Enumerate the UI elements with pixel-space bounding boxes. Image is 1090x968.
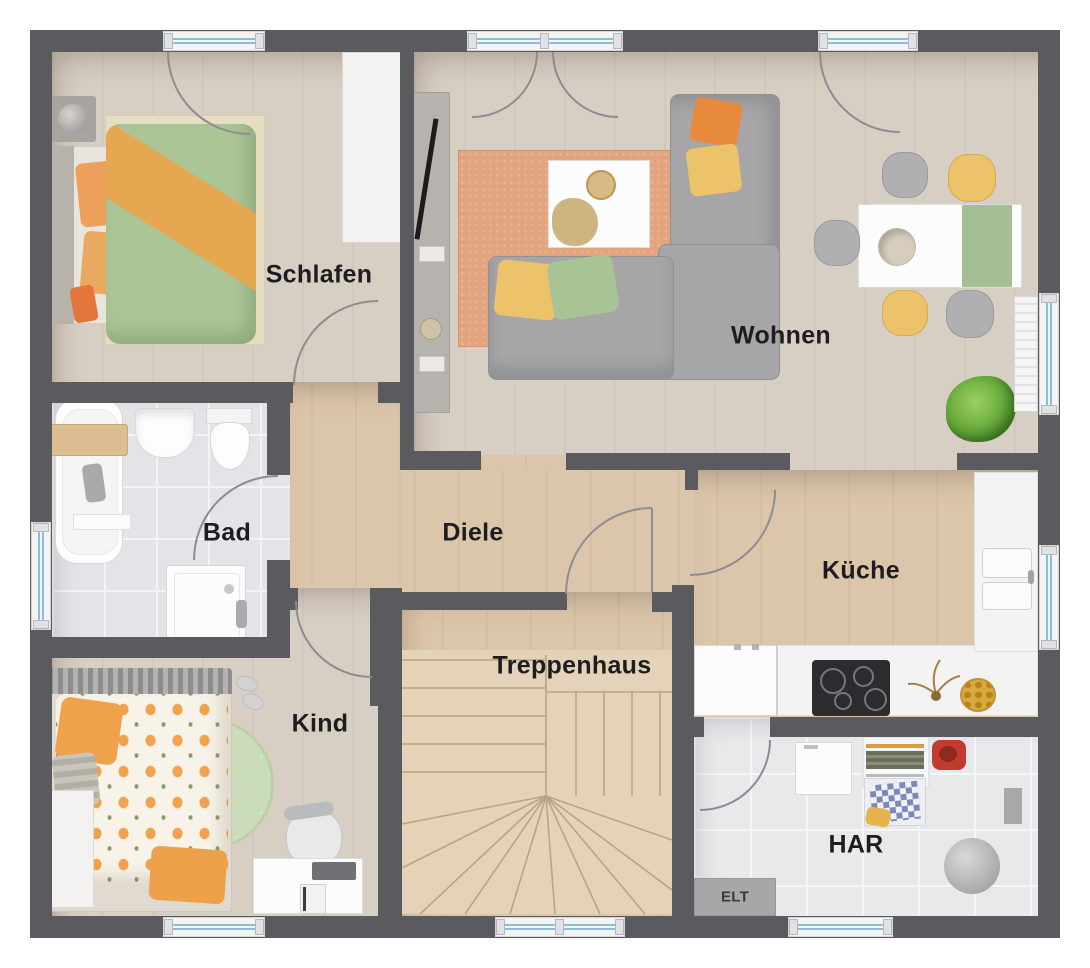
wall-schlafen-east — [400, 52, 414, 470]
window-wohnen-top-double — [467, 31, 623, 51]
keyboard — [312, 862, 356, 880]
dried-grass-decor — [552, 198, 598, 246]
burner — [864, 688, 887, 711]
fridge-handle — [734, 644, 741, 650]
bath-tray — [48, 424, 128, 456]
table-lamp — [58, 104, 88, 134]
shelf-decor-bowl — [420, 318, 442, 340]
chair-gray — [882, 152, 928, 198]
room-label-schlafen: Schlafen — [266, 263, 373, 288]
washbasin — [135, 408, 195, 458]
fruit-bowl — [960, 678, 996, 712]
sofa-pillow-green — [546, 253, 620, 321]
radiator — [1014, 296, 1038, 412]
chair-yellow — [948, 154, 996, 202]
room-label-diele: Diele — [442, 521, 503, 546]
sofa-pillow-yellow — [685, 143, 742, 197]
shower-drain — [224, 584, 234, 594]
shelf-books — [419, 246, 445, 262]
red-basket — [932, 740, 966, 770]
window-bad-left — [31, 522, 51, 630]
red-basket-inner — [939, 746, 957, 762]
outer-wall-left — [30, 30, 52, 938]
boiler — [944, 838, 1000, 894]
window-wohnen-right — [1039, 293, 1059, 415]
rack-bar — [866, 774, 924, 777]
clothes-line-orange — [866, 744, 924, 748]
table-runner — [962, 205, 1012, 287]
room-label-treppenhaus: Treppenhaus — [493, 654, 652, 679]
kitchen-sink-2 — [982, 582, 1032, 610]
wall-unit — [1004, 788, 1022, 824]
duvet-orange-stripe — [106, 124, 256, 312]
washer-controls — [804, 745, 818, 749]
washing-machine — [795, 742, 852, 795]
chair-gray-3 — [946, 290, 994, 338]
window-har-bottom — [788, 917, 893, 937]
kids-blanket-orange — [148, 845, 228, 904]
window-kueche-right — [1039, 545, 1059, 650]
room-label-bad: Bad — [203, 521, 251, 546]
window-treppenhaus-bottom — [495, 917, 625, 937]
wall-kueche-south — [770, 717, 1038, 737]
room-floor-passage — [481, 455, 566, 470]
monitor-screen-edge — [303, 887, 306, 911]
wall-kind-door-jamb — [267, 588, 298, 610]
window-kind-bottom — [163, 917, 265, 937]
kids-bed-headboard — [48, 668, 232, 694]
burner — [820, 668, 846, 694]
sofa-pillow-orange — [689, 96, 744, 148]
wall-treppenhaus-west — [378, 588, 402, 916]
burner — [834, 692, 852, 710]
wall-shelf — [73, 514, 131, 530]
wall-diele-north-east — [566, 453, 790, 470]
room-label-elt: ELT — [721, 890, 749, 905]
decor-tray — [586, 170, 616, 200]
wall-bad-south — [52, 637, 267, 658]
wall-treppenhaus-east — [672, 585, 694, 916]
fridge-handle-2 — [752, 644, 759, 650]
wall-schlafen-south-jamb — [378, 382, 414, 403]
room-label-kind: Kind — [292, 712, 349, 737]
wall-kueche-south-jamb — [694, 717, 704, 737]
laundry-item-yellow — [865, 806, 892, 828]
flower-bowl — [878, 228, 916, 266]
room-label-kueche: Küche — [822, 559, 900, 584]
kitchen-faucet — [1028, 570, 1034, 584]
fridge — [694, 645, 778, 716]
wardrobe — [342, 52, 402, 243]
room-label-har: HAR — [828, 833, 883, 858]
wall-diele-north-west — [400, 451, 481, 470]
kids-wardrobe — [48, 790, 94, 908]
kitchen-sink — [982, 548, 1032, 578]
window-schlafen-top — [163, 31, 265, 51]
duvet-green — [106, 124, 256, 344]
outer-wall-right — [1038, 30, 1060, 938]
shower-handheld — [236, 600, 247, 628]
wall-bad-east-upper — [267, 403, 290, 475]
wall-wohnen-kueche-east — [957, 453, 1038, 470]
monitor — [300, 884, 326, 914]
clothes-dark — [866, 751, 924, 769]
shelf-books-2 — [419, 356, 445, 372]
burner — [853, 666, 874, 687]
cooktop — [812, 660, 890, 716]
floorplan-canvas: Schlafen Wohnen Bad Diele Küche Kind Tre… — [0, 0, 1090, 968]
room-label-wohnen: Wohnen — [731, 324, 831, 349]
staircase-area — [402, 650, 672, 914]
wall-schlafen-south — [52, 382, 293, 403]
wall-kueche-door-jamb — [685, 470, 698, 490]
wall-treppenhaus-north — [398, 592, 567, 610]
chair-gray-2 — [814, 220, 860, 266]
window-wohnen-top-right — [818, 31, 918, 51]
sofa-corner — [658, 244, 780, 380]
chair-yellow-2 — [882, 290, 928, 336]
